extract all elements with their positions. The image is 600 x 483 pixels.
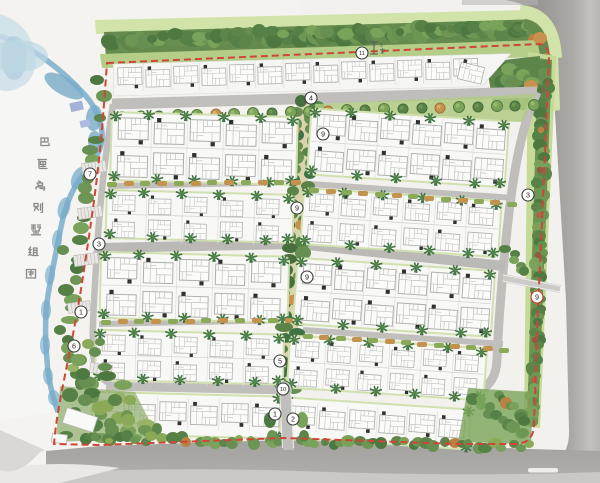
- svg-text:9: 9: [295, 204, 299, 213]
- svg-text:5: 5: [278, 357, 282, 366]
- svg-text:1: 1: [79, 308, 83, 317]
- svg-text:3: 3: [97, 240, 101, 249]
- svg-text:7: 7: [88, 170, 92, 179]
- svg-text:9: 9: [321, 130, 325, 139]
- svg-text:9: 9: [535, 293, 539, 302]
- svg-text:6: 6: [72, 342, 76, 351]
- svg-text:11: 11: [359, 51, 365, 57]
- svg-text:1: 1: [273, 410, 277, 419]
- svg-text:4: 4: [309, 94, 313, 103]
- svg-text:9: 9: [305, 273, 309, 282]
- svg-text:10: 10: [280, 387, 286, 393]
- svg-text:3: 3: [526, 191, 530, 200]
- svg-text:2: 2: [291, 415, 295, 424]
